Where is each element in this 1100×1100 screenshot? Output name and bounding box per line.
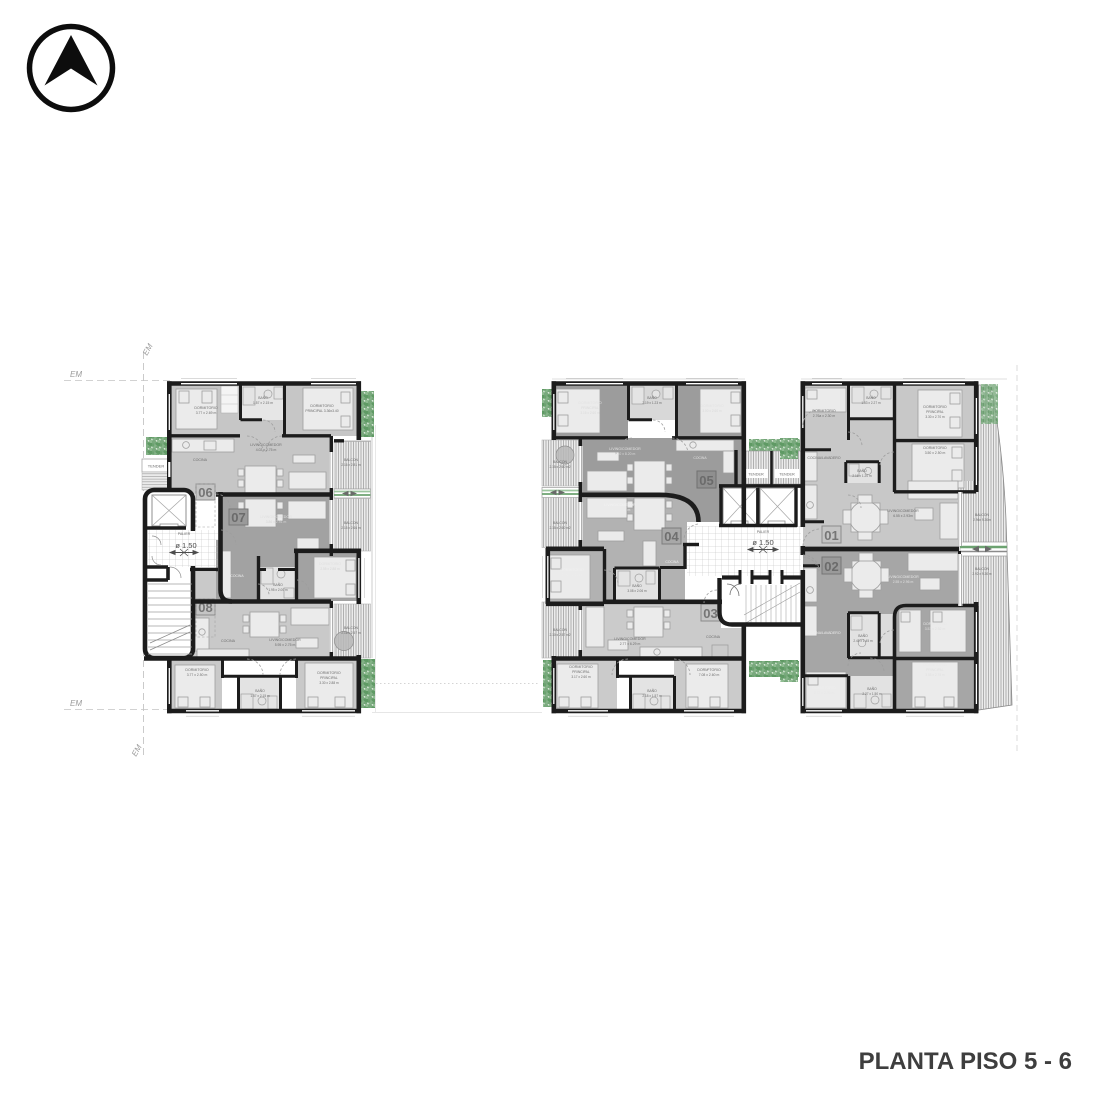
svg-text:LIVING/COMEDOR: LIVING/COMEDOR [260, 515, 292, 519]
svg-text:BALCON: BALCON [975, 567, 989, 571]
svg-text:PRINCIPAL: PRINCIPAL [581, 406, 599, 410]
svg-text:3.00 x 2.35 m: 3.00 x 2.35 m [562, 573, 583, 577]
svg-text:BAÑO: BAÑO [273, 582, 283, 587]
svg-text:COCINA: COCINA [193, 458, 208, 462]
svg-text:2.16 x 1.20 m: 2.16 x 1.20 m [852, 474, 872, 478]
svg-text:3.30 x 2.88 m: 3.30 x 2.88 m [319, 681, 339, 685]
svg-text:1.57 x 2.15 m: 1.57 x 2.15 m [250, 694, 270, 698]
svg-text:2.15 x 2.60 m2: 2.15 x 2.60 m2 [549, 465, 570, 469]
svg-text:5.95 x 2.75 m: 5.95 x 2.75 m [275, 643, 296, 647]
svg-text:2.18 x 1.57 m: 2.18 x 1.57 m [642, 694, 662, 698]
svg-text:2.55 x 2.88 m: 2.55 x 2.88 m [320, 567, 340, 571]
svg-text:02: 02 [824, 559, 838, 574]
svg-text:DORMITORIO: DORMITORIO [185, 668, 208, 672]
svg-text:BALCON: BALCON [975, 513, 989, 517]
svg-text:BAÑO: BAÑO [255, 688, 265, 693]
svg-text:COCINA: COCINA [693, 456, 707, 460]
svg-text:DORMITORIO: DORMITORIO [310, 404, 333, 408]
svg-text:LIVING/COMEDOR: LIVING/COMEDOR [604, 503, 636, 507]
svg-text:2.16 x 2.57 m: 2.16 x 2.57 m [341, 631, 361, 635]
svg-text:4.02 x 2.75 m: 4.02 x 2.75 m [256, 448, 277, 452]
svg-text:PRINCIPAL: PRINCIPAL [926, 668, 944, 672]
svg-text:04: 04 [664, 529, 679, 544]
svg-text:COCINA: COCINA [665, 560, 679, 564]
svg-text:2.92 x 9.30 m: 2.92 x 9.30 m [972, 572, 992, 576]
svg-text:PRINCIPAL: PRINCIPAL [572, 670, 590, 674]
svg-text:3.30 x 2.70 m: 3.30 x 2.70 m [925, 415, 945, 419]
svg-text:DORMITORIO: DORMITORIO [923, 663, 946, 667]
svg-text:3.17 x 2.60 m: 3.17 x 2.60 m [571, 675, 591, 679]
svg-text:LIVING/COMEDOR: LIVING/COMEDOR [269, 638, 301, 642]
svg-text:2.76a x 2.30 m: 2.76a x 2.30 m [813, 414, 836, 418]
svg-text:DORMITORIO: DORMITORIO [560, 568, 583, 572]
svg-text:3.16 x 2.60 m: 3.16 x 2.60 m [580, 411, 600, 415]
svg-text:BALCON: BALCON [344, 626, 358, 630]
svg-text:COCINA: COCINA [221, 639, 236, 643]
svg-text:DORMITORIO: DORMITORIO [812, 409, 835, 413]
svg-text:EM: EM [70, 699, 82, 708]
svg-text:03: 03 [703, 606, 717, 621]
svg-text:DORMITORIO: DORMITORIO [812, 686, 835, 690]
svg-text:BALCON: BALCON [344, 521, 358, 525]
svg-text:3.50 x 2.50 m: 3.50 x 2.50 m [925, 451, 946, 455]
svg-text:LIVING/COMEDOR: LIVING/COMEDOR [887, 509, 919, 513]
svg-text:7.08 x 2.60 m: 7.08 x 2.60 m [699, 673, 720, 677]
svg-text:2.15 x 2.60 m2: 2.15 x 2.60 m2 [549, 526, 570, 530]
svg-text:ø 1.50: ø 1.50 [175, 541, 196, 550]
svg-text:7.10 x 8.20 m: 7.10 x 8.20 m [615, 452, 636, 456]
svg-text:BAÑO: BAÑO [632, 583, 642, 588]
svg-text:DORMITORIO: DORMITORIO [923, 405, 946, 409]
svg-text:BALCON: BALCON [553, 460, 567, 464]
svg-text:LIVING/COMEDOR: LIVING/COMEDOR [609, 447, 641, 451]
svg-text:BALCON: BALCON [553, 521, 567, 525]
svg-text:COCINA: COCINA [706, 635, 721, 639]
svg-text:DORMITORIO: DORMITORIO [317, 671, 340, 675]
svg-text:PRINCIPAL: PRINCIPAL [320, 676, 338, 680]
svg-text:05: 05 [699, 473, 713, 488]
svg-text:2.55 x 2.96 m: 2.55 x 2.96 m [893, 580, 914, 584]
svg-text:COCINA/LAVADERO: COCINA/LAVADERO [807, 456, 840, 460]
svg-text:TENDER: TENDER [779, 473, 795, 477]
svg-text:1.95 x 2.00 m: 1.95 x 2.00 m [268, 588, 288, 592]
svg-text:LIVING/COMEDOR: LIVING/COMEDOR [887, 575, 919, 579]
svg-text:DORMITORIO: DORMITORIO [569, 665, 592, 669]
svg-text:DORMITORIO: DORMITORIO [700, 404, 723, 408]
svg-text:7.60 x 3.84 m: 7.60 x 3.84 m [610, 508, 631, 512]
svg-text:BAÑO: BAÑO [866, 395, 876, 400]
svg-text:2.45 x 1.45 m: 2.45 x 1.45 m [853, 639, 873, 643]
svg-text:2.77 x 6.29 m: 2.77 x 6.29 m [620, 642, 641, 646]
svg-text:2.16 x 2.81 m: 2.16 x 2.81 m [341, 463, 361, 467]
svg-text:COCINA/LAVADERO: COCINA/LAVADERO [807, 631, 840, 635]
svg-text:07: 07 [231, 510, 245, 525]
svg-text:DORM¹TORIO: DORM¹TORIO [697, 668, 721, 672]
svg-text:DORMITORIO: DORMITORIO [194, 406, 217, 410]
svg-text:TENDER: TENDER [748, 473, 764, 477]
svg-text:PALIER: PALIER [757, 530, 770, 534]
svg-text:BAÑO: BAÑO [857, 468, 867, 473]
svg-text:LIVING/COMEDOR: LIVING/COMEDOR [250, 443, 282, 447]
svg-text:3.77 x 2.50 m: 3.77 x 2.50 m [187, 673, 208, 677]
svg-text:01: 01 [824, 528, 838, 543]
svg-text:BAÑO: BAÑO [647, 395, 657, 400]
svg-text:BALCON: BALCON [344, 458, 358, 462]
svg-text:DORMITORIO: DORMITORIO [578, 401, 601, 405]
svg-text:3.55 x 2.75 m: 3.55 x 2.75 m [925, 673, 945, 677]
svg-text:06: 06 [198, 485, 212, 500]
svg-text:EM: EM [70, 370, 82, 379]
svg-text:3.00 x 2.60 m: 3.00 x 2.60 m [702, 409, 722, 413]
svg-text:BALCON: BALCON [553, 628, 567, 632]
svg-text:BAÑO: BAÑO [867, 686, 877, 691]
svg-text:2.73 x 2.36 m: 2.73 x 2.36 m [814, 691, 835, 695]
svg-text:2.15 x 2.66 m: 2.15 x 2.66 m [341, 526, 361, 530]
svg-text:PRINCIPAL 3.36x3.40: PRINCIPAL 3.36x3.40 [305, 409, 338, 413]
svg-text:COCINA: COCINA [230, 574, 244, 578]
svg-text:TENDER: TENDER [148, 464, 165, 469]
svg-text:PRINCIPAL: PRINCIPAL [926, 410, 944, 414]
svg-text:2.10 x 2.57 m2: 2.10 x 2.57 m2 [549, 633, 570, 637]
svg-text:LIVING/COMEDOR: LIVING/COMEDOR [614, 637, 646, 641]
svg-text:BAÑO: BAÑO [258, 395, 268, 400]
svg-text:BAÑO: BAÑO [647, 688, 657, 693]
svg-text:1.57 x 2.15 m: 1.57 x 2.15 m [253, 401, 273, 405]
svg-text:1.53 x 2.27 m: 1.53 x 2.27 m [861, 401, 881, 405]
svg-text:PLANTA PISO 5 - 6: PLANTA PISO 5 - 6 [859, 1048, 1072, 1075]
svg-text:ø 1.50: ø 1.50 [752, 538, 773, 547]
svg-text:PALIER: PALIER [178, 532, 191, 536]
svg-text:3.08 x 2.06 m: 3.08 x 2.06 m [627, 589, 647, 593]
svg-text:BAÑO: BAÑO [858, 633, 868, 638]
svg-text:DORMITORIO: DORMITORIO [923, 446, 946, 450]
svg-text:2.19 x 1.23 m: 2.19 x 1.23 m [642, 401, 662, 405]
svg-text:3.77 x 2.69 m: 3.77 x 2.69 m [196, 411, 217, 415]
svg-text:2.27 x 1.50 m: 2.27 x 1.50 m [862, 692, 882, 696]
svg-text:6.55 x 2.93m: 6.55 x 2.93m [893, 514, 913, 518]
svg-text:2.96x 9.30m: 2.96x 9.30m [973, 518, 991, 522]
svg-text:3.86 x 2.91 m: 3.86 x 2.91 m [266, 520, 287, 524]
svg-text:DORMITORIO: DORMITORIO [923, 622, 946, 626]
svg-text:3.53 x 2.92 m: 3.53 x 2.92 m [925, 627, 946, 631]
svg-text:DORMITORIO: DORMITORIO [319, 562, 341, 566]
